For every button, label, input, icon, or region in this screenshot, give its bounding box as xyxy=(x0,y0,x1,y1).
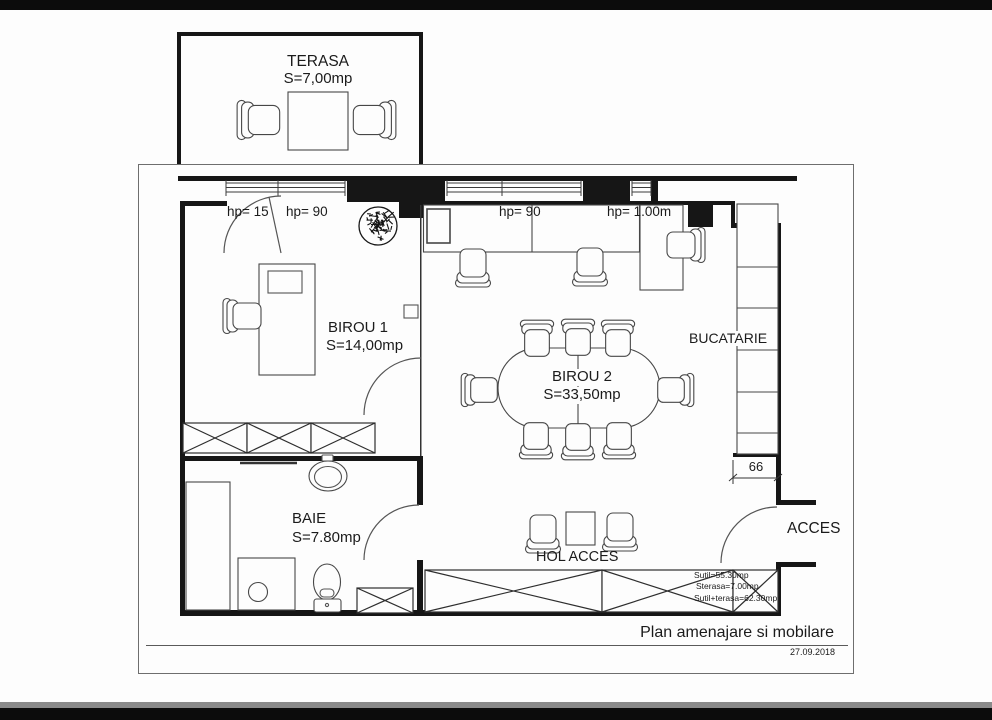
chair xyxy=(223,299,261,334)
dim-counter-width: 66 xyxy=(742,460,770,474)
chair xyxy=(561,319,594,355)
chair xyxy=(456,249,491,287)
acces-door-arc xyxy=(721,507,777,563)
room-label-birou2: BIROU 2 xyxy=(538,369,626,386)
chair xyxy=(461,373,497,406)
room-area-baie: S=7.80mp xyxy=(292,530,361,547)
chair xyxy=(603,513,638,551)
dim-hp-birou2-right: hp= 1.00m xyxy=(607,205,671,220)
room-area-birou2: S=33,50mp xyxy=(532,387,632,404)
summary-terasa: Sterasa=7.00mp xyxy=(696,582,759,591)
chair xyxy=(353,100,396,139)
room-label-hol: HOL ACCES xyxy=(536,550,618,566)
summary-total: Sutil+terasa=62.30mp xyxy=(694,594,777,603)
chair xyxy=(520,320,553,356)
birou1-door-arc xyxy=(364,358,421,415)
chair xyxy=(602,423,635,459)
summary-util: Sutil=55.30mp xyxy=(694,571,749,580)
room-label-acces: ACCES xyxy=(787,520,840,537)
title-block-line xyxy=(146,645,848,646)
birou2-cabinet xyxy=(427,209,450,243)
chair xyxy=(526,515,561,553)
letterbox-bottom xyxy=(0,708,992,720)
chair xyxy=(561,424,594,460)
baie-door-arc xyxy=(364,505,419,560)
kitchen-counter xyxy=(737,204,778,454)
chair xyxy=(658,373,694,406)
drawing-title: Plan amenajare si mobilare xyxy=(598,624,834,642)
chair xyxy=(573,248,608,286)
room-label-birou1: BIROU 1 xyxy=(328,320,388,337)
chair xyxy=(601,320,634,356)
floorplan-drawing xyxy=(0,0,992,720)
drawing-date: 27.09.2018 xyxy=(779,648,835,658)
room-label-baie: BAIE xyxy=(292,511,326,528)
furniture xyxy=(186,92,778,612)
room-area-terasa: S=7,00mp xyxy=(250,71,386,88)
washing-machine xyxy=(238,558,295,610)
wall-switch xyxy=(404,305,418,318)
dim-hp-birou1-window: hp= 90 xyxy=(286,205,328,220)
birou1-monitor xyxy=(268,271,302,293)
dim-hp-terasa-door: hp= 15 xyxy=(227,205,269,220)
terasa-door-leaf xyxy=(269,197,281,253)
hol-table xyxy=(566,512,595,545)
terasa-table xyxy=(288,92,348,150)
baie-counter xyxy=(186,482,230,610)
chair xyxy=(237,100,280,139)
floorplan-page: TERASA S=7,00mp hp= 15 hp= 90 hp= 90 hp=… xyxy=(0,0,992,720)
toilet xyxy=(314,564,342,612)
chair xyxy=(667,228,705,263)
room-label-terasa: TERASA xyxy=(250,53,386,70)
dim-hp-birou2-left: hp= 90 xyxy=(499,205,541,220)
room-area-birou1: S=14,00mp xyxy=(326,338,403,355)
plant xyxy=(359,207,397,245)
chair xyxy=(519,423,552,459)
room-label-bucatarie: BUCATARIE xyxy=(687,331,769,346)
